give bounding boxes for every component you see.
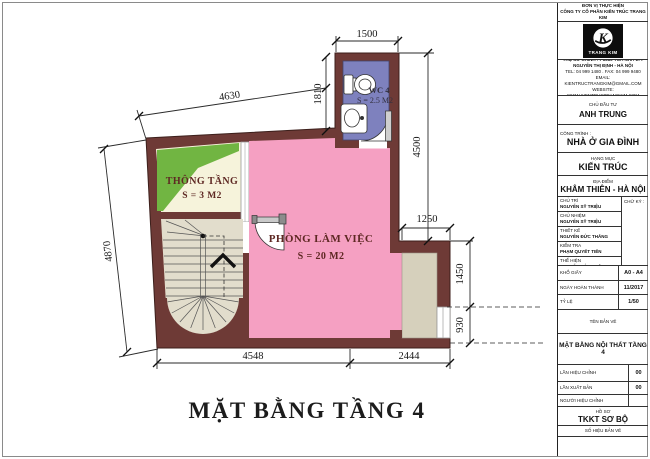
personnel-table: CHỦ TRÌ NGUYỄN SỸ TRIỆU CHỦ NHIỆM NGUYỄN… xyxy=(558,197,648,266)
edition-row: LẦN XUẤT BẢN 00 xyxy=(558,382,648,395)
investor-name: ANH TRUNG xyxy=(579,110,627,119)
personnel-name: PHẠM QUYẾT TIẾN xyxy=(560,249,602,255)
personnel-name: NGUYỄN SỸ TRIỆU xyxy=(560,204,601,210)
office-room-name: PHÒNG LÀM VIỆC xyxy=(269,232,373,245)
number-label: SỐ HIỆU BẢN VẼ xyxy=(585,428,621,434)
project-name: NHÀ Ở GIA ĐÌNH xyxy=(567,137,639,147)
revision-row: LẦN HIỆU CHỈNH 00 xyxy=(558,365,648,382)
stairs xyxy=(161,219,243,338)
plan-title: MẶT BẰNG TẦNG 4 xyxy=(189,397,426,423)
investor-label: CHỦ ĐẦU TƯ xyxy=(589,102,617,108)
floor-plan: 1500 1810 4630 4500 1250 1450 930 4870 4… xyxy=(0,0,557,459)
personnel-name: NGUYỄN SỸ TRIỆU xyxy=(560,219,601,225)
dim-bottom-left: 4548 xyxy=(243,351,264,362)
alcove xyxy=(402,253,437,338)
reviser-label: NGƯỜI HIỆU CHỈNH xyxy=(560,398,603,404)
reviser-row: NGƯỜI HIỆU CHỈNH xyxy=(558,395,648,407)
personnel-row: CHỦ NHIỆM NGUYỄN SỸ TRIỆU xyxy=(558,212,621,227)
address-line: EMAIL: KIENTRUCTRANGKIM@GMAIL.COM xyxy=(558,75,648,87)
drawing-name-label-cell: TÊN BẢN VẼ xyxy=(558,310,648,334)
category-name: KIẾN TRÚC xyxy=(579,162,628,172)
window-strip xyxy=(241,142,249,222)
void-room-name: THÔNG TẦNG xyxy=(166,174,238,187)
personnel-row: CHỦ TRÌ NGUYỄN SỸ TRIỆU xyxy=(558,197,621,212)
personnel-name: NGUYỄN ĐỨC THẮNG xyxy=(560,234,608,240)
doorway-gap xyxy=(243,222,250,253)
dossier-cell: HỒ SƠ TKKT SƠ BỘ xyxy=(558,407,648,426)
address-section: TRỤ SỞ CHÍNH : P1610 TÒA NHÀ 17T NGUYỄN … xyxy=(558,60,648,96)
dim-bottom-right: 2444 xyxy=(399,351,421,362)
date-label: NGÀY HOÀN THÀNH xyxy=(560,285,604,291)
dossier-value: TKKT SƠ BỘ xyxy=(578,415,628,424)
title-block: ĐƠN VỊ THỰC HIỆN CÔNG TY CỔ PHẦN KIẾN TR… xyxy=(557,3,648,456)
company-logo: K TRANG KIM xyxy=(583,24,623,58)
number-cell: SỐ HIỆU BẢN VẼ xyxy=(558,426,648,437)
revision-label: LẦN HIỆU CHỈNH xyxy=(560,370,596,376)
dim-wc-width: 1500 xyxy=(357,29,378,40)
revision-value: 00 xyxy=(628,365,648,381)
personnel-row: KIỂM TRA PHẠM QUYẾT TIẾN xyxy=(558,242,621,257)
edition-value: 00 xyxy=(628,382,648,394)
drawing-name: MẶT BẰNG NỘI THẤT TẦNG 4 xyxy=(558,342,648,356)
location-section: ĐỊA ĐIỂM KHÂM THIÊN - HÀ NỘI xyxy=(558,176,648,197)
personnel-row: THỂ HIỆN NGUYỄN ĐỨC THẮNG xyxy=(558,257,621,266)
logo-section: K TRANG KIM xyxy=(558,22,648,60)
date-value: 11/2017 xyxy=(618,281,648,295)
dim-wc-height: 1810 xyxy=(313,84,324,105)
unit-name: CÔNG TY CỔ PHẦN KIẾN TRÚC TRANG KIM xyxy=(558,9,648,21)
empty-cell xyxy=(558,437,648,456)
edition-label: LẦN XUẤT BẢN xyxy=(560,385,592,391)
drawing-name-label: TÊN BẢN VẼ xyxy=(590,319,617,325)
wall-opening xyxy=(437,307,450,338)
wc-room-name: WC 4 xyxy=(368,85,390,95)
paper-label: KHỔ GIẤY xyxy=(560,270,582,276)
location-name: KHÂM THIÊN - HÀ NỘI xyxy=(560,185,645,194)
void-room-area: S = 3 M2 xyxy=(182,191,222,201)
reviser-value xyxy=(628,395,648,406)
project-section: CÔNG TRÌNH : NHÀ Ở GIA ĐÌNH xyxy=(558,125,648,153)
investor-section: CHỦ ĐẦU TƯ ANH TRUNG xyxy=(558,96,648,125)
signature-label: CHỮ KÝ : xyxy=(624,199,644,205)
wc-room-area: S = 2.5 M2 xyxy=(357,96,393,105)
paper-value: A0 - A4 xyxy=(618,266,648,280)
drawing-name-cell: MẶT BẰNG NỘI THẤT TẦNG 4 xyxy=(558,334,648,365)
dim-left: 4870 xyxy=(102,240,115,262)
sink-icon xyxy=(341,104,367,133)
unit-header: ĐƠN VỊ THỰC HIỆN CÔNG TY CỔ PHẦN KIẾN TR… xyxy=(558,3,648,22)
dim-right-lower: 930 xyxy=(455,317,466,333)
scale-label: TỶ LỆ xyxy=(560,299,573,305)
wall-stop xyxy=(390,330,402,338)
personnel-row: THIẾT KẾ NGUYỄN ĐỨC THẮNG xyxy=(558,227,621,242)
category-section: HẠNG MỤC KIẾN TRÚC xyxy=(558,153,648,176)
dim-right-mid: 1450 xyxy=(455,264,466,285)
dim-right-upper: 4500 xyxy=(412,137,423,158)
logo-text: TRANG KIM xyxy=(588,50,617,55)
office-room-area: S = 20 M2 xyxy=(298,251,345,262)
address-line: WEBSITE: WWW.KIENTRUCTRANGKIM.COM xyxy=(558,87,648,97)
scale-value: 1/50 xyxy=(618,295,648,309)
info-rows: KHỔ GIẤY A0 - A4 NGÀY HOÀN THÀNH 11/2017… xyxy=(558,266,648,310)
drawing-sheet: 1500 1810 4630 4500 1250 1450 930 4870 4… xyxy=(0,0,650,459)
logo-swirl-icon: K xyxy=(592,27,614,49)
dim-step: 1250 xyxy=(417,214,438,225)
